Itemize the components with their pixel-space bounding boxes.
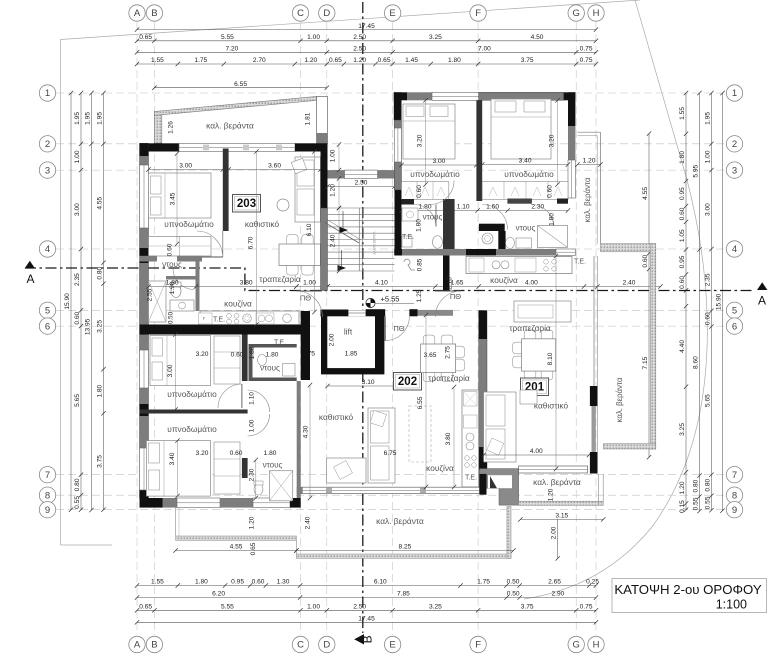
svg-text:3.00: 3.00 bbox=[179, 163, 192, 170]
svg-text:+5.55: +5.55 bbox=[381, 295, 400, 304]
svg-text:8: 8 bbox=[45, 490, 50, 501]
svg-text:6.55: 6.55 bbox=[234, 81, 247, 88]
svg-text:2.35: 2.35 bbox=[74, 273, 81, 286]
svg-text:3.25: 3.25 bbox=[429, 604, 442, 611]
svg-text:A: A bbox=[134, 640, 141, 651]
svg-text:Τ.Ε.: Τ.Ε. bbox=[402, 234, 414, 241]
svg-text:A: A bbox=[758, 294, 766, 308]
svg-text:Τ.Ε.: Τ.Ε. bbox=[465, 475, 477, 482]
svg-text:6.10: 6.10 bbox=[374, 579, 387, 586]
svg-text:3.00: 3.00 bbox=[167, 364, 174, 377]
svg-text:3.65: 3.65 bbox=[424, 352, 437, 359]
svg-text:7: 7 bbox=[45, 470, 50, 481]
svg-text:F: F bbox=[475, 640, 481, 651]
svg-text:4.55: 4.55 bbox=[230, 544, 243, 551]
svg-text:0.65: 0.65 bbox=[139, 604, 152, 611]
svg-text:1.05: 1.05 bbox=[679, 229, 686, 242]
svg-text:F: F bbox=[203, 316, 206, 321]
svg-text:13.95: 13.95 bbox=[85, 318, 92, 335]
svg-text:0.50: 0.50 bbox=[168, 311, 175, 324]
svg-text:1: 1 bbox=[732, 88, 737, 99]
svg-text:2.65: 2.65 bbox=[548, 579, 561, 586]
svg-text:1.55: 1.55 bbox=[151, 579, 164, 586]
svg-text:0.80: 0.80 bbox=[693, 479, 700, 492]
svg-text:15.90: 15.90 bbox=[64, 293, 71, 310]
svg-text:0.50: 0.50 bbox=[507, 591, 520, 598]
svg-text:G: G bbox=[573, 8, 580, 19]
svg-text:1.95: 1.95 bbox=[97, 112, 104, 125]
svg-text:202: 202 bbox=[398, 376, 417, 388]
svg-text:5.55: 5.55 bbox=[221, 34, 234, 41]
svg-text:1.80: 1.80 bbox=[266, 352, 279, 359]
svg-text:1.20: 1.20 bbox=[353, 57, 366, 64]
svg-text:καθιστικό: καθιστικό bbox=[245, 219, 280, 229]
svg-text:8.25: 8.25 bbox=[398, 544, 411, 551]
svg-text:2.40: 2.40 bbox=[305, 516, 312, 529]
svg-text:lift: lift bbox=[344, 327, 353, 337]
svg-text:ΚΑΤΟΨΗ 2-ου ΟΡΟΦΟΥ: ΚΑΤΟΨΗ 2-ου ΟΡΟΦΟΥ bbox=[614, 582, 761, 597]
svg-text:καλ. βεράντα: καλ. βεράντα bbox=[206, 121, 254, 131]
svg-text:1.75: 1.75 bbox=[194, 57, 207, 64]
svg-text:3.75: 3.75 bbox=[521, 604, 534, 611]
svg-text:C: C bbox=[297, 640, 304, 651]
svg-text:1.75: 1.75 bbox=[477, 579, 490, 586]
svg-text:κουζίνα: κουζίνα bbox=[224, 299, 252, 309]
svg-text:κουζίνα: κουζίνα bbox=[490, 275, 518, 285]
svg-text:0.60: 0.60 bbox=[705, 312, 712, 325]
svg-text:6.75: 6.75 bbox=[384, 450, 397, 457]
svg-text:2.75: 2.75 bbox=[445, 346, 452, 359]
svg-text:5: 5 bbox=[732, 306, 737, 317]
svg-text:7.15: 7.15 bbox=[642, 356, 649, 369]
svg-text:0.95: 0.95 bbox=[231, 579, 244, 586]
svg-text:3.00: 3.00 bbox=[705, 203, 712, 216]
svg-text:0.55: 0.55 bbox=[693, 497, 700, 510]
svg-text:καθιστικό: καθιστικό bbox=[319, 412, 354, 422]
svg-text:υπνοδωμάτιο: υπνοδωμάτιο bbox=[167, 389, 217, 399]
svg-text:B: B bbox=[361, 635, 375, 643]
svg-text:1.80: 1.80 bbox=[416, 219, 423, 232]
svg-text:F: F bbox=[475, 8, 481, 19]
svg-text:1.80: 1.80 bbox=[448, 57, 461, 64]
svg-text:τραπεζαρία: τραπεζαρία bbox=[428, 373, 470, 383]
svg-text:7: 7 bbox=[732, 470, 737, 481]
svg-text:1: 1 bbox=[45, 88, 50, 99]
svg-text:4.00: 4.00 bbox=[525, 280, 538, 287]
svg-text:κουζίνα: κουζίνα bbox=[426, 463, 454, 473]
svg-text:τραπεζαρία: τραπεζαρία bbox=[259, 274, 301, 284]
svg-text:9: 9 bbox=[45, 505, 50, 516]
svg-text:6: 6 bbox=[732, 321, 737, 332]
svg-text:ντους: ντους bbox=[162, 260, 182, 269]
svg-text:5: 5 bbox=[45, 306, 50, 317]
svg-text:0.75: 0.75 bbox=[580, 57, 593, 64]
svg-text:203: 203 bbox=[237, 198, 256, 210]
svg-text:1.20: 1.20 bbox=[583, 158, 596, 165]
svg-text:3.60: 3.60 bbox=[268, 163, 281, 170]
svg-text:2.50: 2.50 bbox=[353, 46, 366, 53]
svg-text:0.55: 0.55 bbox=[74, 496, 81, 509]
svg-text:0.60: 0.60 bbox=[547, 185, 554, 198]
svg-text:7.00: 7.00 bbox=[478, 46, 491, 53]
svg-text:6.20: 6.20 bbox=[212, 591, 225, 598]
svg-text:2.50: 2.50 bbox=[355, 180, 368, 187]
svg-text:3.20: 3.20 bbox=[549, 134, 556, 147]
svg-text:6.70: 6.70 bbox=[248, 236, 255, 249]
svg-text:2.30: 2.30 bbox=[249, 468, 256, 481]
svg-text:1.80: 1.80 bbox=[97, 384, 104, 397]
svg-text:1.20: 1.20 bbox=[304, 57, 317, 64]
svg-text:0.55: 0.55 bbox=[705, 496, 712, 509]
svg-text:0.60: 0.60 bbox=[230, 450, 243, 457]
svg-text:2.90: 2.90 bbox=[551, 591, 564, 598]
svg-text:2.40: 2.40 bbox=[330, 234, 337, 247]
svg-text:2.10: 2.10 bbox=[447, 277, 454, 290]
svg-text:0.65: 0.65 bbox=[378, 57, 391, 64]
svg-text:2: 2 bbox=[45, 139, 50, 150]
svg-text:0.60: 0.60 bbox=[679, 276, 686, 289]
svg-text:A: A bbox=[26, 272, 34, 286]
svg-text:4.30: 4.30 bbox=[303, 425, 310, 438]
svg-text:4.50: 4.50 bbox=[531, 34, 544, 41]
svg-text:0.60: 0.60 bbox=[642, 254, 649, 267]
svg-text:3.75: 3.75 bbox=[97, 455, 104, 468]
svg-text:3.15: 3.15 bbox=[555, 513, 568, 520]
svg-text:1.20: 1.20 bbox=[548, 488, 555, 501]
svg-text:1.20: 1.20 bbox=[330, 184, 337, 197]
svg-text:3.80: 3.80 bbox=[240, 280, 253, 287]
svg-text:E: E bbox=[389, 8, 395, 19]
svg-text:υπνοδωμάτιο: υπνοδωμάτιο bbox=[164, 219, 214, 229]
svg-text:1.81: 1.81 bbox=[305, 112, 312, 125]
svg-text:3.25: 3.25 bbox=[679, 423, 686, 436]
svg-text:3.10: 3.10 bbox=[362, 379, 375, 386]
svg-text:ντους: ντους bbox=[516, 224, 536, 233]
svg-text:1.00: 1.00 bbox=[330, 149, 337, 162]
svg-text:A: A bbox=[134, 8, 141, 19]
svg-text:6.10: 6.10 bbox=[306, 223, 313, 236]
svg-text:ΠΘ: ΠΘ bbox=[300, 294, 311, 303]
svg-text:1.00: 1.00 bbox=[303, 280, 316, 287]
svg-text:1.25: 1.25 bbox=[416, 289, 423, 302]
svg-text:0.25: 0.25 bbox=[586, 579, 599, 586]
svg-text:0.60: 0.60 bbox=[167, 243, 174, 256]
svg-text:5.65: 5.65 bbox=[74, 394, 81, 407]
svg-text:1.20: 1.20 bbox=[249, 516, 256, 529]
svg-text:3.40: 3.40 bbox=[169, 452, 176, 465]
svg-text:3.80: 3.80 bbox=[445, 432, 452, 445]
svg-text:4.55: 4.55 bbox=[642, 187, 649, 200]
svg-text:1.95: 1.95 bbox=[705, 112, 712, 125]
svg-text:0.75: 0.75 bbox=[580, 604, 593, 611]
svg-text:1.80: 1.80 bbox=[264, 450, 277, 457]
svg-text:1.80: 1.80 bbox=[679, 151, 686, 164]
svg-text:15.90: 15.90 bbox=[716, 293, 723, 310]
svg-text:0.65: 0.65 bbox=[329, 57, 342, 64]
svg-text:3.25: 3.25 bbox=[97, 320, 104, 333]
svg-text:καλ. βεράντα: καλ. βεράντα bbox=[583, 177, 592, 222]
svg-text:1.10: 1.10 bbox=[249, 392, 256, 405]
svg-text:7.20: 7.20 bbox=[225, 46, 238, 53]
svg-text:4.00: 4.00 bbox=[530, 448, 543, 455]
svg-text:0.65: 0.65 bbox=[139, 34, 152, 41]
svg-text:1.95: 1.95 bbox=[74, 112, 81, 125]
svg-text:1.30: 1.30 bbox=[277, 579, 290, 586]
svg-text:καθιστικό: καθιστικό bbox=[534, 401, 569, 411]
svg-text:H: H bbox=[593, 640, 600, 651]
svg-text:1.85: 1.85 bbox=[345, 351, 358, 358]
svg-text:1.80: 1.80 bbox=[166, 280, 179, 287]
svg-text:0.80: 0.80 bbox=[74, 478, 81, 491]
svg-text:17.45: 17.45 bbox=[358, 616, 375, 623]
svg-text:D: D bbox=[323, 640, 330, 651]
svg-text:1.20: 1.20 bbox=[679, 481, 686, 494]
svg-text:E: E bbox=[389, 640, 395, 651]
svg-text:3.20: 3.20 bbox=[196, 450, 209, 457]
svg-text:υπνοδωμάτιο: υπνοδωμάτιο bbox=[504, 169, 554, 179]
svg-text:ντους: ντους bbox=[423, 213, 443, 222]
svg-text:2.00: 2.00 bbox=[551, 526, 558, 539]
svg-text:3.75: 3.75 bbox=[521, 57, 534, 64]
svg-text:9: 9 bbox=[732, 505, 737, 516]
svg-text:5.55: 5.55 bbox=[221, 604, 234, 611]
svg-text:Τ.Ε.: Τ.Ε. bbox=[574, 259, 586, 266]
svg-text:0.60: 0.60 bbox=[231, 352, 244, 359]
svg-text:1.00: 1.00 bbox=[307, 604, 320, 611]
svg-text:6: 6 bbox=[45, 321, 50, 332]
svg-text:5.95: 5.95 bbox=[693, 164, 700, 177]
svg-text:B: B bbox=[151, 640, 157, 651]
svg-text:Τ.Ε.: Τ.Ε. bbox=[274, 340, 286, 347]
svg-text:4: 4 bbox=[732, 244, 737, 255]
svg-text:1.80: 1.80 bbox=[195, 579, 208, 586]
svg-text:Τ.Ε.: Τ.Ε. bbox=[213, 317, 225, 324]
svg-text:3.00: 3.00 bbox=[74, 203, 81, 216]
svg-text:H: H bbox=[593, 8, 600, 19]
svg-text:0.75: 0.75 bbox=[580, 46, 593, 53]
svg-text:2.70: 2.70 bbox=[253, 57, 266, 64]
svg-text:0.80: 0.80 bbox=[705, 478, 712, 491]
svg-text:4: 4 bbox=[45, 244, 50, 255]
svg-text:0,15: 0,15 bbox=[679, 500, 686, 513]
svg-text:υπνοδωμάτιο: υπνοδωμάτιο bbox=[410, 169, 460, 179]
svg-text:1.26: 1.26 bbox=[168, 121, 175, 134]
svg-text:1.55: 1.55 bbox=[151, 57, 164, 64]
svg-text:1.45: 1.45 bbox=[405, 57, 418, 64]
svg-text:B: B bbox=[151, 8, 157, 19]
svg-text:2.50: 2.50 bbox=[353, 34, 366, 41]
svg-text:1.00: 1.00 bbox=[307, 34, 320, 41]
svg-text:0.95: 0.95 bbox=[679, 187, 686, 200]
svg-text:καλ. βεράντα: καλ. βεράντα bbox=[376, 516, 424, 526]
svg-text:2.00: 2.00 bbox=[329, 333, 336, 346]
svg-text:0.60: 0.60 bbox=[416, 185, 423, 198]
svg-text:2.55: 2.55 bbox=[147, 288, 154, 301]
svg-text:3.00: 3.00 bbox=[432, 158, 445, 165]
svg-text:ΣΚΑΛΑ 18 ΡΙΧΤ.: ΣΚΑΛΑ 18 ΡΙΧΤ. bbox=[373, 231, 377, 254]
svg-text:3.40: 3.40 bbox=[519, 158, 532, 165]
svg-text:τραπεζαρία: τραπεζαρία bbox=[509, 323, 551, 333]
svg-text:υπνοδωμάτιο: υπνοδωμάτιο bbox=[167, 424, 217, 434]
svg-text:3.25: 3.25 bbox=[429, 34, 442, 41]
svg-text:0.50: 0.50 bbox=[507, 579, 520, 586]
svg-text:2: 2 bbox=[732, 139, 737, 150]
svg-text:1.80: 1.80 bbox=[549, 213, 556, 226]
svg-text:ΠΘ: ΠΘ bbox=[450, 292, 461, 301]
svg-text:0.60: 0.60 bbox=[74, 311, 81, 324]
svg-text:καλ. βεράντα: καλ. βεράντα bbox=[533, 477, 581, 487]
svg-text:1:100: 1:100 bbox=[716, 598, 747, 612]
svg-text:4.10: 4.10 bbox=[375, 280, 388, 287]
svg-text:0.60: 0.60 bbox=[679, 207, 686, 220]
svg-text:G: G bbox=[573, 640, 580, 651]
svg-text:4.40: 4.40 bbox=[679, 340, 686, 353]
svg-text:8.60: 8.60 bbox=[693, 356, 700, 369]
svg-text:2.50: 2.50 bbox=[353, 604, 366, 611]
svg-text:ντους: ντους bbox=[263, 461, 283, 470]
svg-text:0.85: 0.85 bbox=[417, 258, 424, 271]
svg-text:C: C bbox=[297, 8, 304, 19]
svg-text:5.65: 5.65 bbox=[705, 394, 712, 407]
svg-text:3: 3 bbox=[732, 165, 737, 176]
svg-text:4.55: 4.55 bbox=[97, 196, 104, 209]
svg-text:1.00: 1.00 bbox=[705, 150, 712, 163]
svg-text:ΠΘ: ΠΘ bbox=[393, 324, 404, 333]
svg-text:0.95: 0.95 bbox=[679, 255, 686, 268]
svg-text:0.60: 0.60 bbox=[252, 579, 265, 586]
svg-text:3.20: 3.20 bbox=[196, 351, 209, 358]
svg-text:καλ. βεράντα: καλ. βεράντα bbox=[615, 377, 624, 422]
svg-text:D: D bbox=[323, 8, 330, 19]
svg-text:8.10: 8.10 bbox=[547, 352, 554, 365]
svg-text:8: 8 bbox=[732, 490, 737, 501]
svg-text:1.10: 1.10 bbox=[457, 204, 470, 211]
svg-text:1.95: 1.95 bbox=[85, 112, 92, 125]
svg-text:3.20: 3.20 bbox=[417, 134, 424, 147]
svg-text:1.80: 1.80 bbox=[249, 346, 256, 359]
svg-text:1.00: 1.00 bbox=[74, 150, 81, 163]
svg-text:1.55: 1.55 bbox=[679, 107, 686, 120]
svg-text:1.00: 1.00 bbox=[249, 419, 256, 432]
svg-text:6.55: 6.55 bbox=[417, 396, 424, 409]
svg-text:3: 3 bbox=[45, 165, 50, 176]
svg-text:3.45: 3.45 bbox=[170, 192, 177, 205]
svg-text:7.85: 7.85 bbox=[397, 591, 410, 598]
svg-text:2.40: 2.40 bbox=[623, 280, 636, 287]
svg-text:17.45: 17.45 bbox=[358, 23, 375, 30]
svg-text:0.65: 0.65 bbox=[250, 542, 257, 555]
svg-text:2.35: 2.35 bbox=[705, 273, 712, 286]
